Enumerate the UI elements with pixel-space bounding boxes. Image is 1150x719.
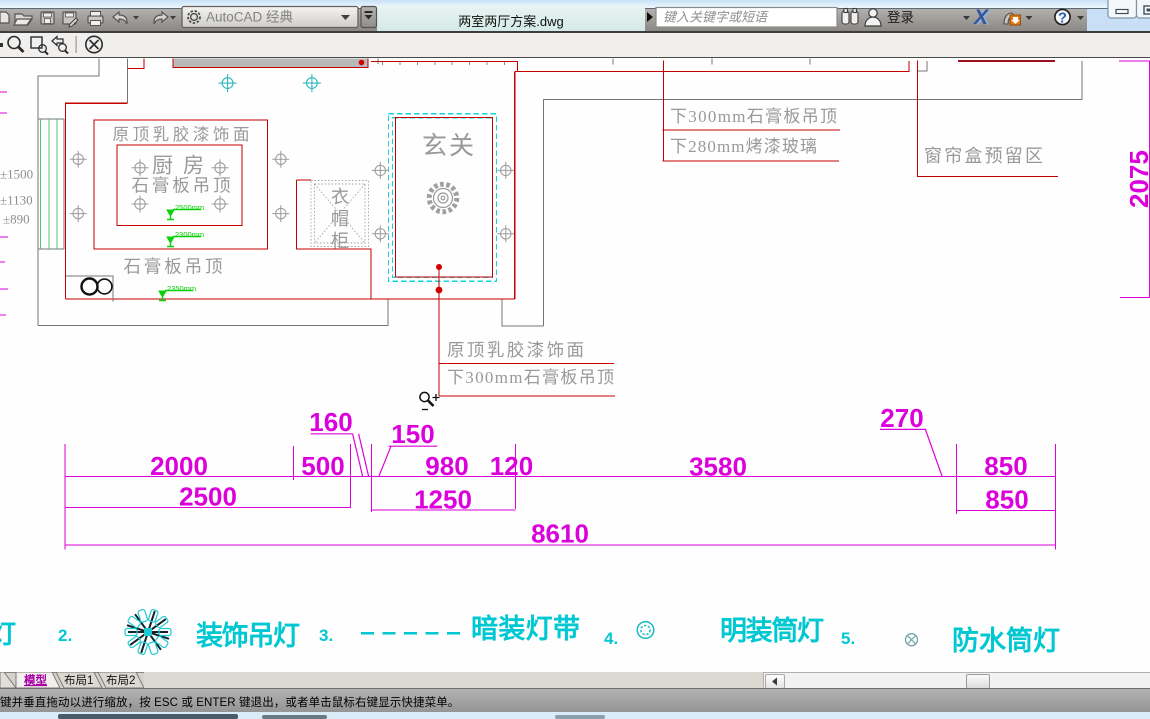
svg-text:防水筒灯: 防水筒灯	[952, 625, 1060, 656]
svg-text:850: 850	[984, 451, 1027, 481]
svg-text:2.: 2.	[58, 626, 72, 645]
svg-text:120: 120	[490, 451, 533, 481]
svg-text:±890: ±890	[3, 212, 30, 227]
svg-text:2300mm: 2300mm	[175, 230, 204, 239]
svg-text:850: 850	[985, 485, 1028, 515]
svg-text:下300mm石膏板吊顶: 下300mm石膏板吊顶	[447, 367, 614, 387]
svg-text:980: 980	[425, 451, 468, 481]
svg-text:布局2: 布局2	[106, 674, 135, 687]
svg-text:灯: 灯	[0, 619, 16, 649]
svg-text:150: 150	[391, 419, 434, 449]
svg-text:2500: 2500	[179, 482, 237, 512]
svg-text:8610: 8610	[531, 519, 589, 549]
svg-text:玄关: 玄关	[422, 132, 474, 160]
svg-text:石膏板吊顶: 石膏板吊顶	[124, 257, 223, 277]
svg-text:下280mm烤漆玻璃: 下280mm烤漆玻璃	[670, 137, 817, 156]
svg-text:±1130: ±1130	[0, 193, 33, 208]
svg-text:暗装灯带: 暗装灯带	[471, 614, 580, 644]
svg-text:3580: 3580	[689, 452, 747, 482]
svg-text:布局1: 布局1	[64, 674, 93, 687]
svg-text:3.: 3.	[319, 626, 333, 645]
svg-text:厨房: 厨房	[152, 154, 204, 178]
svg-text:衣: 衣	[331, 187, 349, 207]
svg-text:500: 500	[301, 451, 344, 481]
svg-text:帽: 帽	[331, 209, 349, 229]
svg-text:±1500: ±1500	[0, 167, 33, 182]
svg-text:柜: 柜	[331, 231, 349, 251]
svg-text:5.: 5.	[841, 629, 855, 648]
svg-text:1250: 1250	[414, 485, 472, 515]
svg-text:160: 160	[309, 407, 352, 437]
svg-text:2350mm: 2350mm	[167, 284, 196, 293]
svg-text:下300mm石膏板吊顶: 下300mm石膏板吊顶	[670, 106, 837, 126]
svg-text:装饰吊灯: 装饰吊灯	[196, 621, 300, 651]
svg-text:2075: 2075	[1124, 150, 1150, 208]
svg-text:石膏板吊顶: 石膏板吊顶	[132, 176, 231, 196]
svg-text:模型: 模型	[24, 673, 47, 687]
svg-text:原顶乳胶漆饰面: 原顶乳胶漆饰面	[447, 340, 584, 360]
svg-text:4.: 4.	[604, 629, 618, 648]
svg-text:270: 270	[880, 403, 923, 433]
svg-text:2000: 2000	[150, 451, 208, 481]
svg-text:2500mm: 2500mm	[175, 203, 204, 212]
svg-text:窗帘盒预留区: 窗帘盒预留区	[924, 146, 1043, 166]
svg-text:明装筒灯: 明装筒灯	[720, 615, 824, 646]
svg-text:原顶乳胶漆饰面: 原顶乳胶漆饰面	[113, 125, 250, 144]
